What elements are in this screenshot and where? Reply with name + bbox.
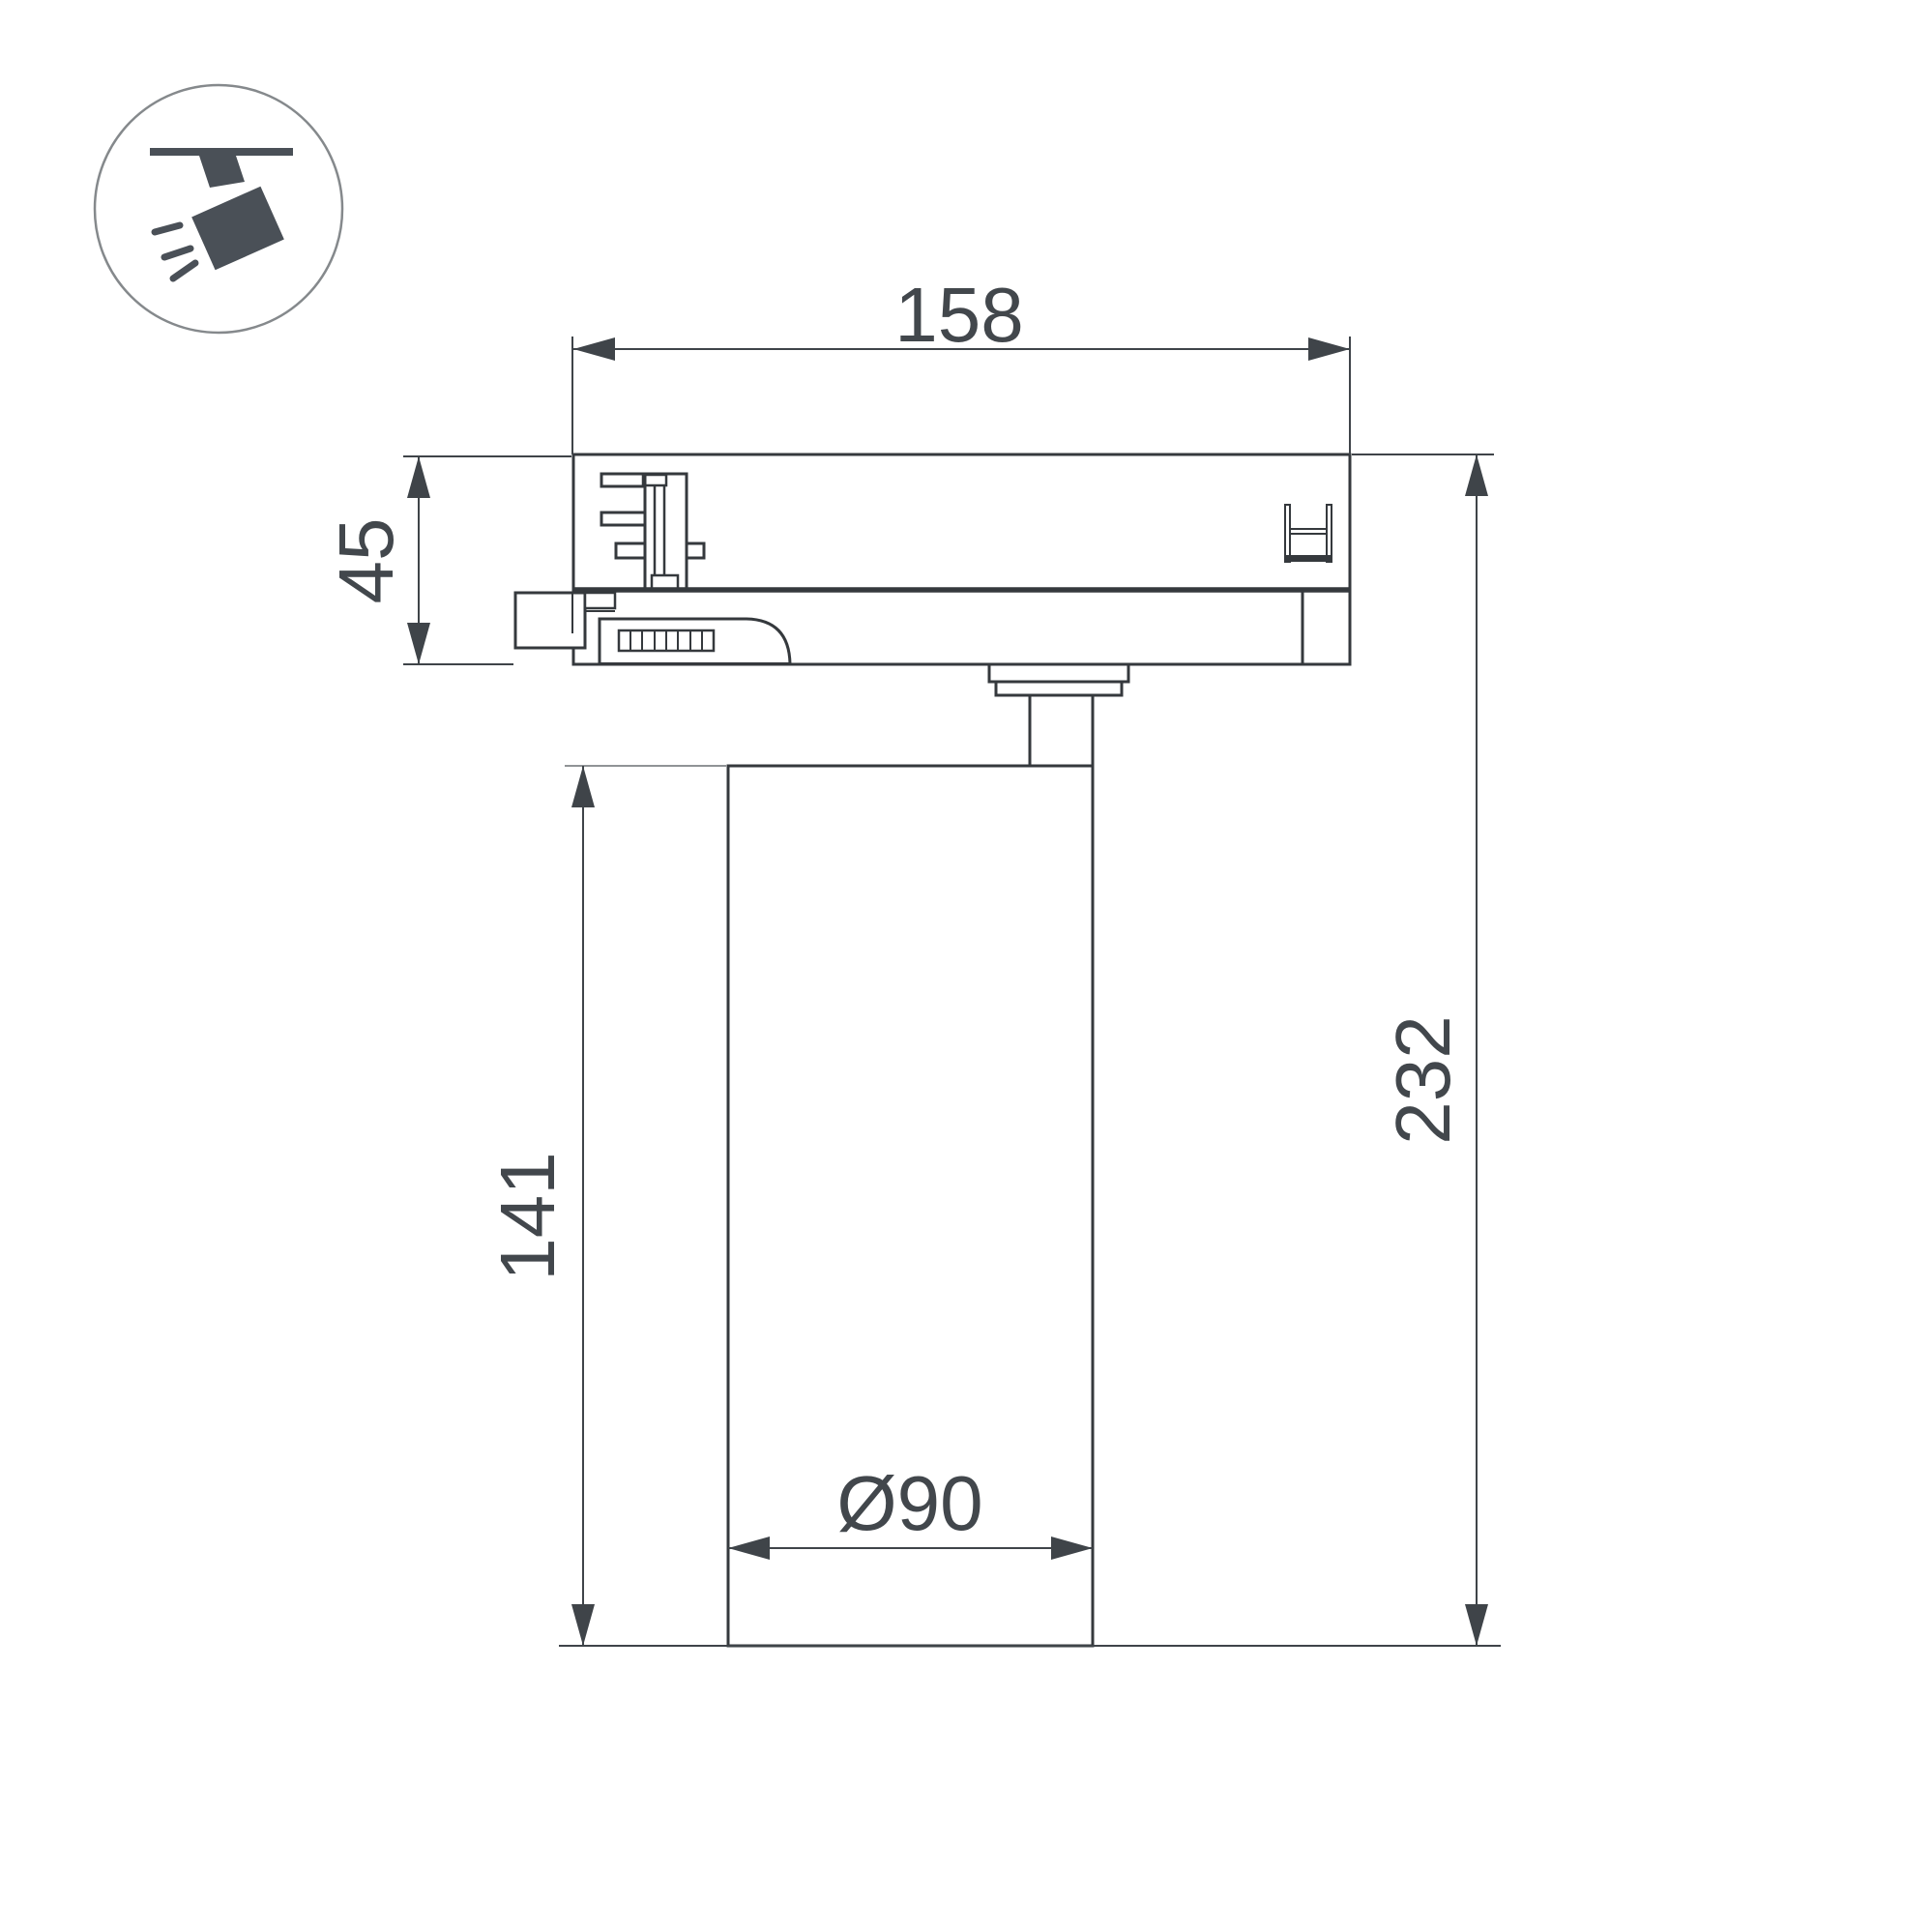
slider-outline bbox=[600, 619, 790, 664]
clip-base bbox=[1285, 555, 1332, 562]
dimension-value-232: 232 bbox=[1380, 1015, 1466, 1144]
slider-ribs bbox=[630, 630, 702, 651]
track-spotlight-icon bbox=[95, 85, 342, 333]
pedestal-step-2 bbox=[996, 682, 1122, 695]
latch-notch bbox=[585, 593, 615, 608]
dimension-value-141: 141 bbox=[484, 1152, 571, 1280]
slider-block bbox=[600, 619, 790, 664]
latch-box bbox=[515, 593, 585, 648]
icon-track-bar bbox=[150, 148, 293, 156]
dimension-value-158: 158 bbox=[894, 272, 1023, 358]
drawing-canvas: 158 45 141 232 Ø90 bbox=[0, 0, 1932, 1932]
dimension-value-45: 45 bbox=[323, 518, 409, 604]
pedestal-stem bbox=[1030, 695, 1093, 766]
dimension-value-d90: Ø90 bbox=[836, 1460, 982, 1546]
pedestal-step-1 bbox=[989, 664, 1128, 682]
